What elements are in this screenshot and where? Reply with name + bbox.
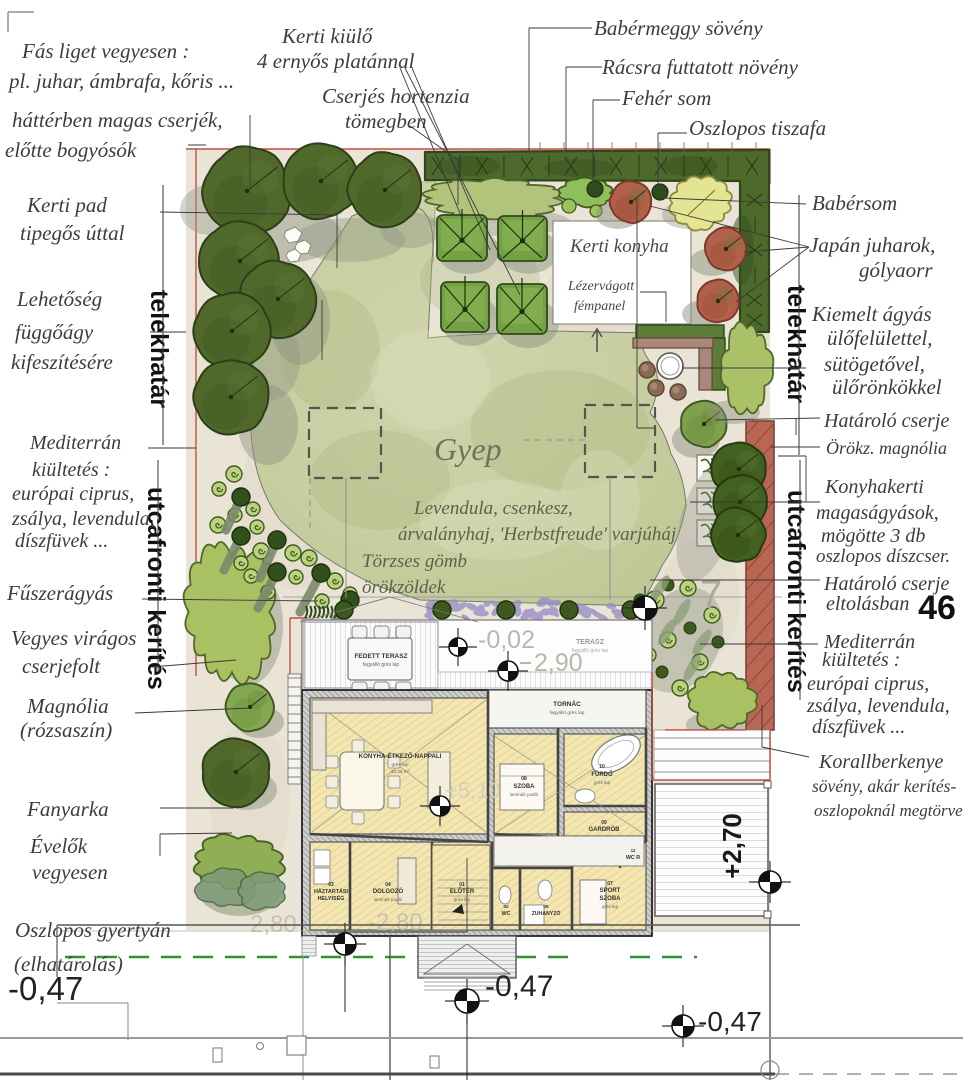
svg-text:Kerti pad: Kerti pad (26, 193, 107, 217)
svg-text:Kiemelt ágyás: Kiemelt ágyás (811, 302, 932, 326)
svg-text:díszfüvek ...: díszfüvek ... (812, 716, 905, 738)
svg-text:TORNÁC: TORNÁC (553, 699, 581, 708)
svg-text:TERASZ: TERASZ (576, 639, 605, 646)
svg-text:zsálya, levendula,: zsálya, levendula, (806, 695, 950, 717)
svg-text:oszlopos díszcser.: oszlopos díszcser. (816, 546, 950, 567)
svg-text:Babérmeggy sövény: Babérmeggy sövény (594, 16, 763, 40)
svg-text:örökzöldek: örökzöldek (362, 577, 446, 598)
svg-text:európai ciprus,: európai ciprus, (807, 673, 929, 695)
svg-text:telekhatár: telekhatár (145, 290, 173, 408)
svg-text:árvalányhaj, 'Herbstfreude' va: árvalányhaj, 'Herbstfreude' varjúháj (398, 524, 676, 545)
svg-text:telekhatár: telekhatár (782, 285, 810, 403)
svg-text:Oszlopos gyertyán: Oszlopos gyertyán (15, 918, 171, 942)
svg-text:03: 03 (328, 882, 334, 888)
svg-text:-0,02: -0,02 (478, 626, 535, 654)
svg-text:HÁZTARTÁSI: HÁZTARTÁSI (314, 888, 349, 895)
svg-text:+2,70: +2,70 (717, 813, 747, 879)
svg-text:pl. juhar, ámbrafa, kőris ...: pl. juhar, ámbrafa, kőris ... (7, 69, 234, 93)
svg-text:grès lap: grès lap (602, 904, 619, 909)
svg-text:(elhatárolás): (elhatárolás) (14, 952, 123, 976)
svg-text:-0,47: -0,47 (698, 1006, 762, 1037)
svg-text:magaságyások,: magaságyások, (816, 502, 939, 524)
svg-text:ZUHANYZÓ: ZUHANYZÓ (532, 909, 561, 917)
svg-text:kiültetés :: kiültetés : (32, 459, 110, 481)
svg-text:Cserjés hortenzia: Cserjés hortenzia (322, 84, 470, 108)
svg-text:KONYHA-ÉTKEZŐ-NAPPALI: KONYHA-ÉTKEZŐ-NAPPALI (359, 752, 442, 760)
svg-text:FEDETT TERASZ: FEDETT TERASZ (354, 653, 407, 660)
svg-text:-0,47: -0,47 (485, 970, 553, 1003)
svg-text:ELŐTÉR: ELŐTÉR (450, 887, 475, 895)
svg-text:ülőrönkökkel: ülőrönkökkel (832, 375, 942, 399)
svg-text:2,90: 2,90 (534, 649, 583, 677)
svg-text:Oszlopos tiszafa: Oszlopos tiszafa (689, 116, 826, 140)
svg-text:WC R: WC R (626, 855, 640, 861)
svg-text:Kerti konyha: Kerti konyha (569, 236, 669, 257)
svg-text:Fás liget vegyesen :: Fás liget vegyesen : (21, 39, 189, 63)
svg-text:4 ernyős platánnal: 4 ernyős platánnal (257, 49, 415, 73)
svg-text:01: 01 (459, 882, 465, 888)
svg-text:+5,10: +5,10 (445, 778, 501, 803)
svg-text:Lehetőség: Lehetőség (16, 287, 102, 311)
svg-text:Rácsra futtatott növény: Rácsra futtatott növény (601, 55, 799, 79)
svg-text:mögötte 3 db: mögötte 3 db (821, 525, 925, 547)
svg-text:eltolásban: eltolásban (826, 593, 909, 615)
svg-text:tipegős úttal: tipegős úttal (20, 221, 125, 245)
svg-text:Gyep: Gyep (434, 431, 502, 467)
svg-text:laminált padló: laminált padló (374, 897, 403, 902)
svg-text:04: 04 (385, 882, 391, 888)
svg-text:sütögetővel,: sütögetővel, (824, 352, 925, 376)
svg-text:SPORT: SPORT (600, 888, 621, 894)
svg-text:(rózsaszín): (rózsaszín) (20, 718, 112, 742)
svg-text:SZOBA: SZOBA (514, 784, 536, 790)
svg-text:Fanyarka: Fanyarka (26, 797, 109, 821)
svg-text:GARDRÓB: GARDRÓB (589, 825, 621, 833)
svg-text:Babérsom: Babérsom (812, 191, 897, 215)
svg-text:HELYISÉG: HELYISÉG (318, 894, 345, 902)
svg-text:Magnólia: Magnólia (26, 694, 109, 718)
svg-text:cserjefolt: cserjefolt (22, 654, 101, 678)
svg-text:11: 11 (631, 848, 636, 853)
svg-text:fémpanel: fémpanel (574, 299, 625, 314)
svg-text:gólyaorr: gólyaorr (859, 258, 933, 282)
svg-text:Törzses gömb: Törzses gömb (362, 551, 467, 572)
svg-text:utcafronti kerítés: utcafronti kerítés (782, 490, 810, 693)
svg-text:fagyálló grès lap: fagyálló grès lap (550, 710, 585, 716)
svg-text:DOLGOZÓ: DOLGOZÓ (373, 887, 404, 895)
svg-text:európai ciprus,: európai ciprus, (12, 483, 134, 505)
svg-text:zsálya, levendula,: zsálya, levendula, (11, 508, 155, 530)
svg-text:Fűszerágyás: Fűszerágyás (6, 581, 113, 605)
svg-text:SZOBA: SZOBA (600, 896, 622, 902)
svg-text:07: 07 (607, 881, 613, 887)
svg-text:Örökz. magnólia: Örökz. magnólia (826, 438, 947, 458)
svg-text:05: 05 (543, 904, 549, 909)
svg-text:oszlopoknál megtörve: oszlopoknál megtörve (814, 801, 963, 820)
svg-text:Korallberkenye: Korallberkenye (818, 751, 944, 773)
svg-text:Konyhakerti: Konyhakerti (824, 476, 924, 498)
svg-text:ülőfelülettel,: ülőfelülettel, (827, 326, 933, 350)
svg-text:vegyesen: vegyesen (32, 860, 108, 884)
svg-text:10: 10 (599, 764, 605, 770)
svg-text:FÜRDŐ: FÜRDŐ (591, 771, 613, 778)
svg-text:02: 02 (503, 904, 509, 909)
svg-text:díszfüvek ...: díszfüvek ... (15, 530, 108, 552)
svg-text:háttérben magas cserjék,: háttérben magas cserjék, (12, 108, 223, 132)
svg-text:kiültetés :: kiültetés : (822, 649, 900, 671)
svg-text:09: 09 (601, 820, 607, 826)
svg-text:grès lap: grès lap (454, 897, 471, 902)
svg-text:WC: WC (502, 911, 511, 917)
svg-text:Határoló cserje: Határoló cserje (823, 573, 949, 595)
svg-text:Lézervágott: Lézervágott (567, 279, 635, 294)
svg-text:Fehér som: Fehér som (621, 86, 711, 110)
svg-text:tömegben: tömegben (345, 109, 427, 133)
svg-text:Mediterrán: Mediterrán (29, 432, 121, 454)
svg-text:fagyálló grès lap: fagyálló grès lap (363, 662, 400, 668)
svg-text:sövény, akár kerítés-: sövény, akár kerítés- (812, 776, 956, 796)
svg-text:Kerti kiülő: Kerti kiülő (281, 24, 374, 48)
svg-text:Japán juharok,: Japán juharok, (809, 233, 935, 257)
svg-text:grès lap: grès lap (391, 762, 408, 768)
svg-text:kifeszítésére: kifeszítésére (11, 350, 113, 374)
svg-text:előtte bogyósók: előtte bogyósók (5, 138, 137, 162)
svg-text:Évelők: Évelők (29, 834, 88, 858)
svg-text:08: 08 (521, 776, 527, 782)
svg-text:laminált padló: laminált padló (510, 792, 539, 797)
svg-text:43,38 m²: 43,38 m² (391, 769, 410, 775)
svg-text:Határoló cserje: Határoló cserje (823, 410, 949, 432)
svg-text:függőágy: függőágy (15, 320, 94, 344)
svg-text:Vegyes virágos: Vegyes virágos (11, 626, 136, 650)
svg-text:Levendula, csenkesz,: Levendula, csenkesz, (413, 498, 573, 519)
svg-text:grès lap: grès lap (594, 780, 611, 785)
